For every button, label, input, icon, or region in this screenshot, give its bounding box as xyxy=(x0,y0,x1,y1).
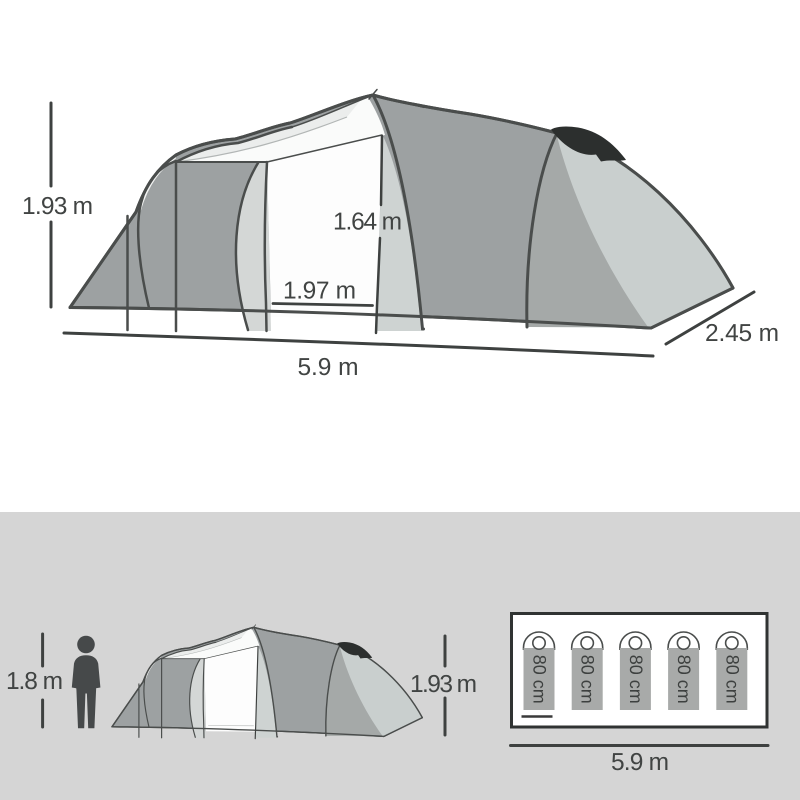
svg-text:80 cm: 80 cm xyxy=(674,655,694,704)
svg-text:2.45 m: 2.45 m xyxy=(705,320,779,347)
svg-text:80 cm: 80 cm xyxy=(530,655,550,704)
svg-text:80 cm: 80 cm xyxy=(722,655,742,704)
svg-text:80 cm: 80 cm xyxy=(626,655,646,704)
svg-text:1.93 m: 1.93 m xyxy=(22,193,93,220)
svg-text:1.8 m: 1.8 m xyxy=(6,668,63,695)
svg-text:5.9 m: 5.9 m xyxy=(298,354,359,381)
svg-text:80 cm: 80 cm xyxy=(578,655,598,704)
svg-text:1.97 m: 1.97 m xyxy=(283,278,356,305)
svg-text:1.93 m: 1.93 m xyxy=(410,671,477,698)
svg-text:1.64 m: 1.64 m xyxy=(333,209,402,236)
svg-text:5.9 m: 5.9 m xyxy=(611,749,669,776)
